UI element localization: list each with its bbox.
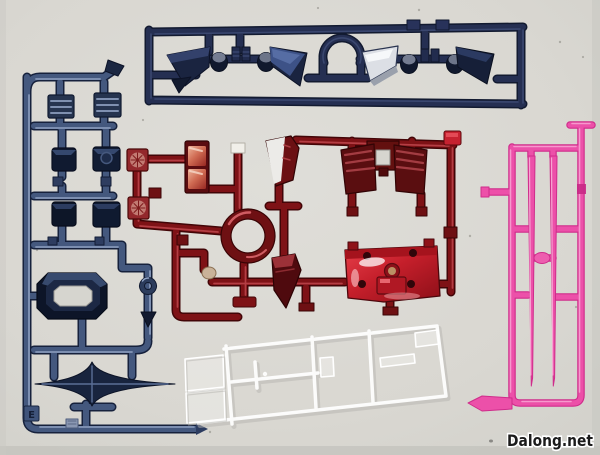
oval-node: [534, 253, 550, 264]
red-corner-cap: [444, 131, 461, 145]
gate-tab: [66, 419, 78, 428]
photo-model-kit-sprues: E: [0, 0, 600, 455]
twin-shiny-panel: [185, 141, 209, 193]
ring-foot: [233, 297, 256, 307]
joint-band: [577, 184, 586, 194]
octagonal-frame-part: [37, 273, 107, 319]
tan-gate-node: [202, 267, 216, 279]
joint-cylinder: [401, 55, 418, 74]
tab-letter: E: [28, 410, 35, 421]
watermark-text: Dalong.net: [507, 431, 593, 450]
stub-cap: [481, 187, 489, 197]
joint-cylinder: [211, 53, 228, 72]
corner-letter-tab: E: [24, 406, 39, 421]
glint: [263, 372, 267, 376]
white-gate-cap: [231, 143, 245, 153]
dust-speck: [489, 440, 493, 443]
